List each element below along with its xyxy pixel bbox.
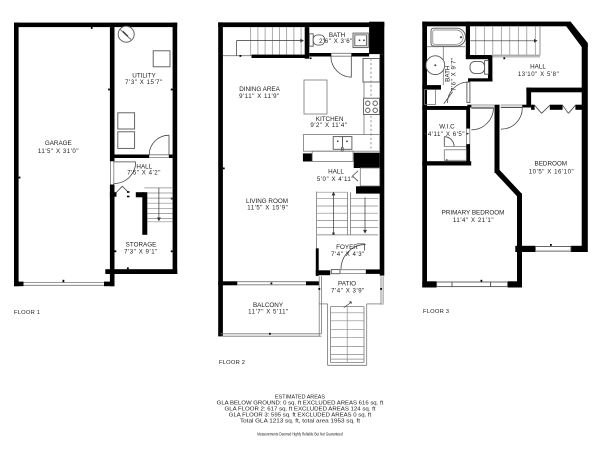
svg-text:4'11" X 6'5": 4'11" X 6'5" — [428, 131, 465, 138]
svg-text:Measurements Deemed Highly Rel: Measurements Deemed Highly Reliable But … — [257, 431, 343, 436]
svg-text:BEDROOM: BEDROOM — [535, 161, 568, 168]
svg-text:11'5" X 31'0": 11'5" X 31'0" — [38, 148, 79, 155]
svg-text:9'2" X 11'4": 9'2" X 11'4" — [310, 122, 347, 129]
svg-text:7'6" X 9'7": 7'6" X 9'7" — [451, 57, 458, 91]
svg-text:PATIO: PATIO — [338, 280, 356, 287]
svg-text:DINING AREA: DINING AREA — [239, 86, 280, 93]
svg-text:13'10" X 5'8": 13'10" X 5'8" — [518, 71, 560, 78]
svg-text:FLOOR 1: FLOOR 1 — [14, 310, 40, 316]
svg-text:11'5" X 15'9": 11'5" X 15'9" — [247, 205, 288, 212]
svg-text:FOYER: FOYER — [336, 244, 358, 251]
svg-text:11'7" X 5'11": 11'7" X 5'11" — [248, 308, 289, 315]
svg-text:W.I.C: W.I.C — [439, 123, 455, 130]
svg-text:5'0" X 4'11": 5'0" X 4'11" — [317, 176, 354, 183]
svg-text:PRIMARY BEDROOM: PRIMARY BEDROOM — [442, 209, 505, 216]
svg-text:11'4" X 21'1": 11'4" X 21'1" — [453, 217, 494, 224]
svg-text:7'3" X 15'7": 7'3" X 15'7" — [125, 79, 163, 86]
svg-text:HALL: HALL — [530, 63, 546, 70]
svg-text:FLOOR 2: FLOOR 2 — [219, 360, 245, 366]
svg-text:7'5" X 4'2": 7'5" X 4'2" — [127, 170, 161, 177]
svg-text:7'4" X 3'9": 7'4" X 3'9" — [331, 288, 365, 295]
svg-text:10'5" X 16'10": 10'5" X 16'10" — [529, 168, 575, 175]
svg-text:Total GLA 1213 sq. ft, total a: Total GLA 1213 sq. ft, total area 1953 s… — [240, 419, 360, 425]
svg-text:GARAGE: GARAGE — [45, 140, 72, 147]
svg-text:7'4" X 4'3": 7'4" X 4'3" — [331, 251, 365, 258]
svg-text:FLOOR 3: FLOOR 3 — [423, 309, 449, 315]
svg-text:7'3" X 9'1": 7'3" X 9'1" — [124, 249, 158, 256]
svg-text:9'11" X 11'9": 9'11" X 11'9" — [239, 93, 280, 100]
svg-text:HALL: HALL — [328, 168, 344, 175]
svg-text:2'6" X 3'6": 2'6" X 3'6" — [319, 38, 353, 45]
svg-text:STORAGE: STORAGE — [126, 242, 157, 249]
